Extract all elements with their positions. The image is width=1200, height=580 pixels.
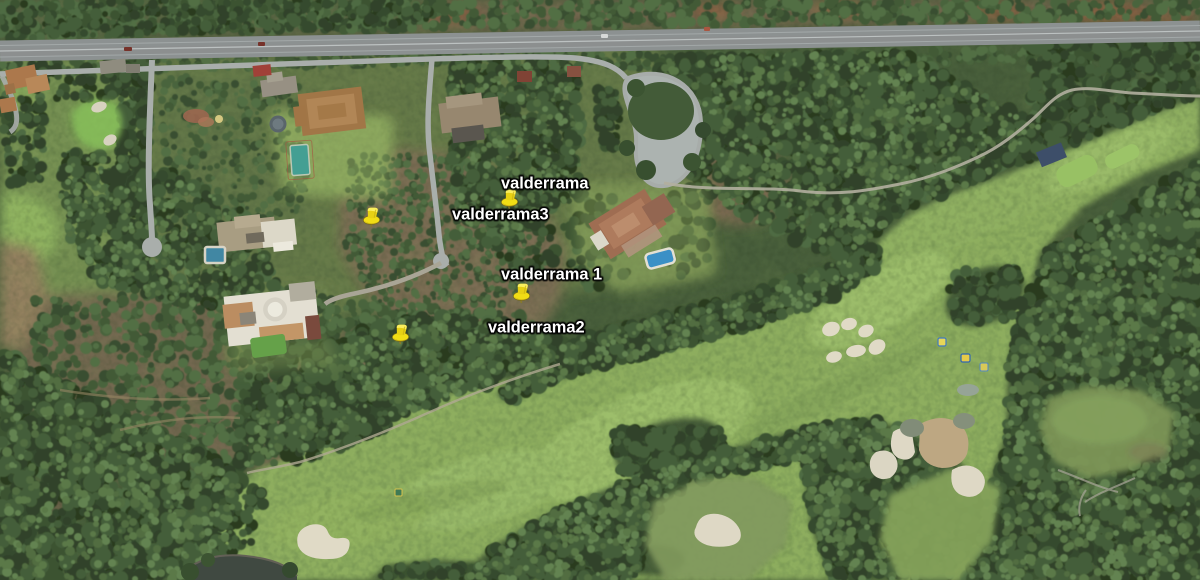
svg-text:valderrama: valderrama <box>501 175 589 193</box>
svg-text:valderrama3: valderrama3 <box>452 206 549 224</box>
svg-text:valderrama 1: valderrama 1 <box>501 266 602 284</box>
svg-text:valderrama2: valderrama2 <box>488 319 585 337</box>
